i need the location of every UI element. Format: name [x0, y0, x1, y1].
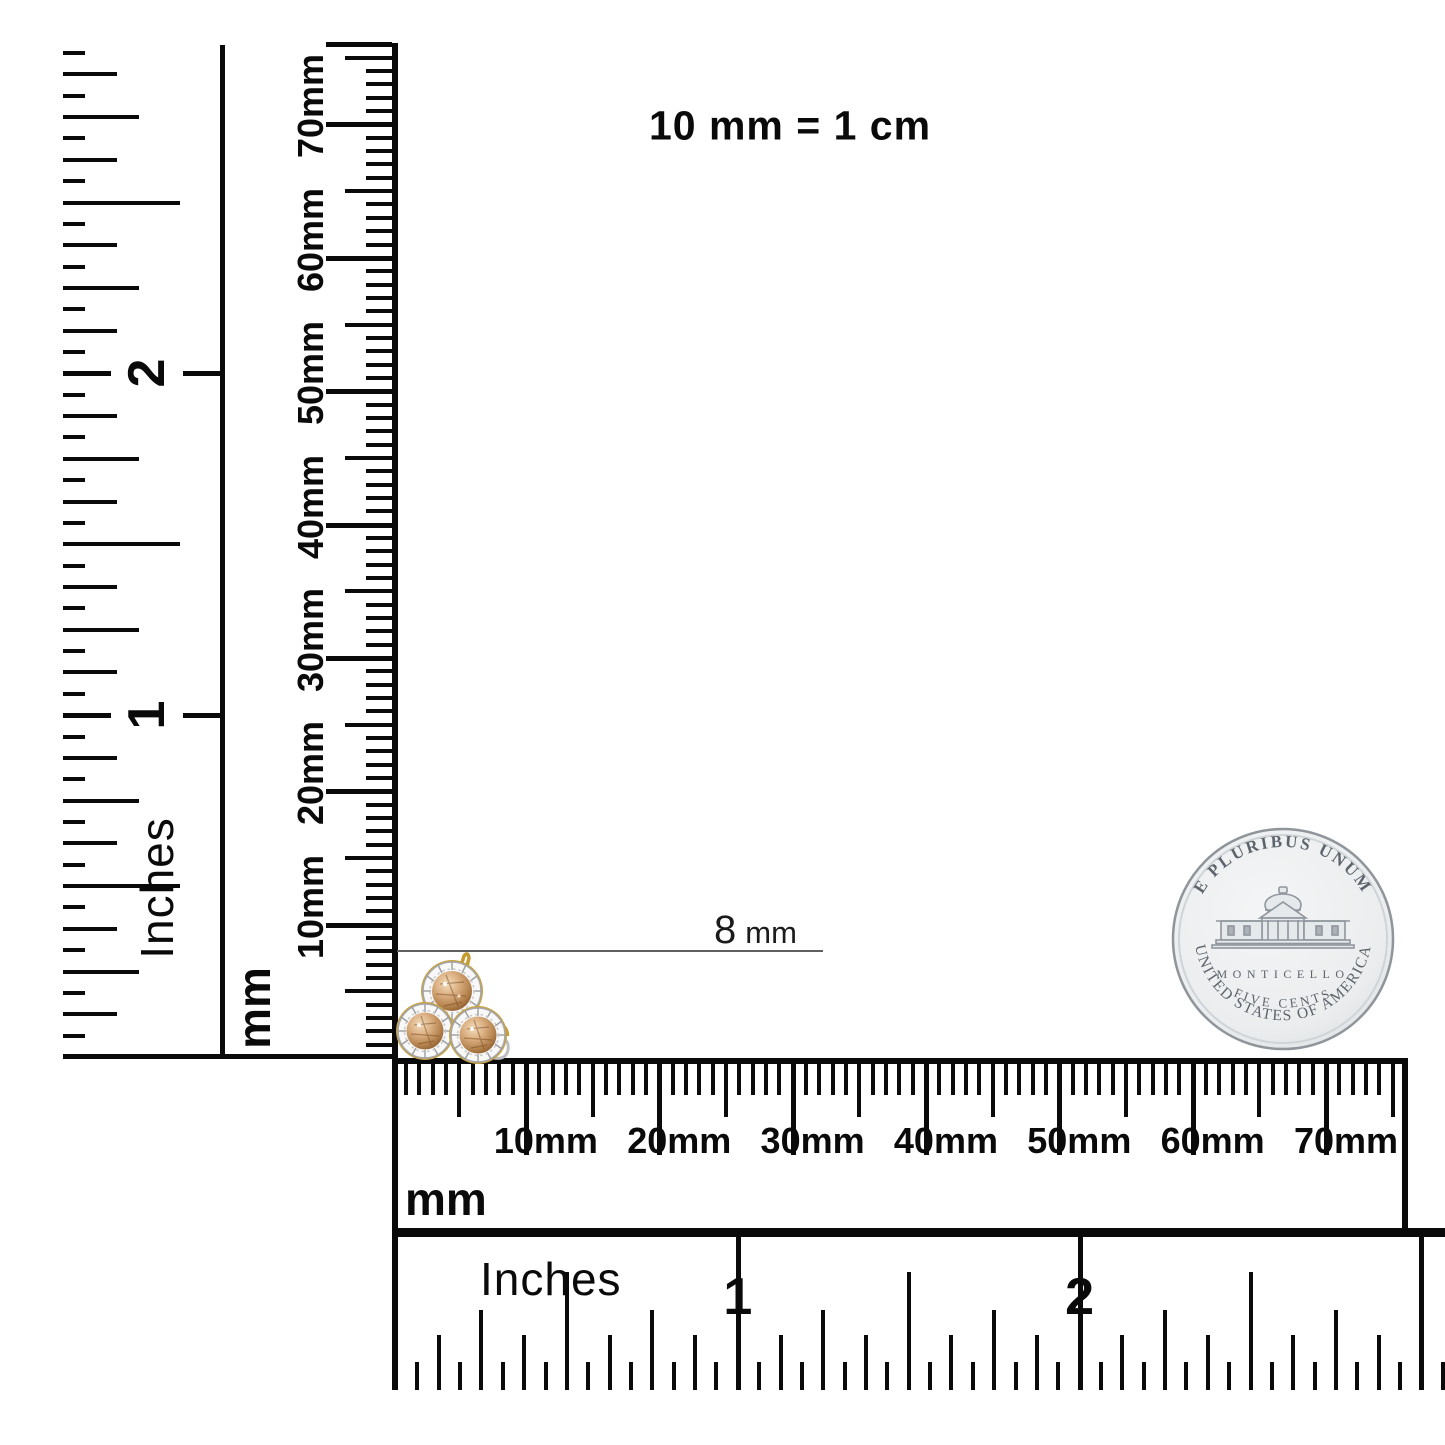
- ruler-tick: [63, 478, 85, 482]
- ruler-tick: [366, 162, 392, 166]
- ruler-tick: [1377, 1335, 1381, 1390]
- ruler-tick: [757, 1362, 761, 1390]
- ruler-tick: [63, 435, 85, 439]
- ruler-tick: [608, 1335, 612, 1390]
- scale-note: 10 mm = 1 cm: [649, 103, 931, 150]
- ruler-tick: [697, 1060, 701, 1095]
- ruler-tick: [63, 970, 139, 974]
- ruler-tick: [63, 841, 117, 845]
- ruler-tick: [366, 616, 392, 620]
- ruler-tick: [63, 329, 117, 333]
- ruler-tick: [843, 1362, 847, 1390]
- mm-tick-label: 20mm: [290, 721, 332, 825]
- ruler-tick: [458, 1362, 462, 1390]
- ruler-tick: [671, 1060, 675, 1095]
- ruler-tick: [1227, 1362, 1231, 1390]
- ruler-tick: [63, 628, 139, 632]
- ruler-tick: [366, 896, 392, 900]
- ruler-tick: [366, 709, 392, 713]
- ruler-tick: [63, 307, 85, 311]
- ruler-tick: [1398, 1362, 1402, 1390]
- ruler-tick: [1249, 1272, 1253, 1390]
- ruler-tick: [1244, 1060, 1248, 1095]
- ruler-tick: [1217, 1060, 1221, 1095]
- mm-tick-label: 50mm: [290, 321, 332, 425]
- ruler-tick: [844, 1060, 848, 1095]
- dimension-value: 8: [714, 908, 736, 952]
- ruler-tick: [544, 1362, 548, 1390]
- ruler-tick: [366, 603, 392, 607]
- ruler-tick: [63, 905, 85, 909]
- ruler-tick: [617, 1060, 621, 1095]
- ruler-tick: [1204, 1060, 1208, 1095]
- mm-tick-label: 40mm: [894, 1120, 998, 1162]
- ruler-tick: [591, 1060, 595, 1117]
- ruler-tick: [1017, 1060, 1021, 1095]
- dimension-unit: mm: [745, 915, 797, 950]
- mm-tick-label: 70mm: [1294, 1120, 1398, 1162]
- ruler-tick: [63, 136, 85, 140]
- ruler-tick: [326, 256, 392, 261]
- ruler-tick: [693, 1335, 697, 1390]
- ruler-tick: [831, 1060, 835, 1095]
- ruler-tick: [764, 1060, 768, 1095]
- ruler-tick: [586, 1362, 590, 1390]
- ruler-tick: [1364, 1060, 1368, 1095]
- ruler-tick: [345, 189, 392, 193]
- ruler-tick: [63, 735, 85, 739]
- ruler-tick: [1355, 1362, 1359, 1390]
- ruler-tick: [366, 669, 392, 673]
- ruler-tick: [992, 1310, 996, 1390]
- ruler-tick: [366, 763, 392, 767]
- horizontal-mm-ruler-right-edge: [1402, 1058, 1408, 1233]
- ruler-tick: [366, 643, 392, 647]
- ruler-tick: [1291, 1335, 1295, 1390]
- ruler-tick: [1441, 1362, 1445, 1390]
- ruler-tick: [366, 843, 392, 847]
- ruler-tick: [1142, 1362, 1146, 1390]
- ruler-tick: [1177, 1060, 1181, 1095]
- mm-tick-label: 40mm: [290, 455, 332, 559]
- ruler-tick: [631, 1060, 635, 1095]
- ruler-tick: [415, 1362, 419, 1390]
- ruler-tick: [366, 336, 392, 340]
- ruler-tick: [63, 457, 139, 461]
- ruler-tick: [345, 589, 392, 593]
- ruler-tick: [751, 1060, 755, 1095]
- ruler-tick: [457, 1060, 461, 1117]
- ruler-tick: [63, 94, 85, 98]
- mm-tick-label: 10mm: [494, 1120, 598, 1162]
- ruler-tick: [63, 201, 180, 205]
- ruler-tick: [366, 243, 392, 247]
- ruler-tick: [1334, 1310, 1338, 1390]
- ruler-tick: [366, 229, 392, 233]
- ruler-tick: [63, 670, 117, 674]
- ruler-tick: [366, 443, 392, 447]
- ruler-tick: [63, 692, 85, 696]
- ruler-tick: [366, 216, 392, 220]
- ruler-tick: [1031, 1060, 1035, 1095]
- ruler-tick: [326, 389, 392, 394]
- ruler-tick: [63, 222, 85, 226]
- ruler-tick: [804, 1060, 808, 1095]
- coin-building-label: MONTICELLO: [1217, 967, 1350, 981]
- ruler-tick: [366, 749, 392, 753]
- earring-image: [388, 944, 540, 1068]
- ruler-tick: [1271, 1060, 1275, 1095]
- ruler-tick: [907, 1272, 911, 1390]
- ruler-tick: [1111, 1060, 1115, 1095]
- ruler-tick: [366, 936, 392, 940]
- ruler-tick: [884, 1060, 888, 1095]
- ruler-tick: [63, 393, 85, 397]
- ruler-tick: [63, 799, 139, 803]
- ruler-tick: [821, 1310, 825, 1390]
- ruler-tick: [951, 1060, 955, 1095]
- ruler-tick: [63, 500, 117, 504]
- ruler-tick: [366, 549, 392, 553]
- ruler-tick: [928, 1362, 932, 1390]
- ruler-tick: [937, 1060, 941, 1095]
- ruler-tick: [63, 927, 117, 931]
- ruler-tick: [522, 1335, 526, 1390]
- ruler-tick: [366, 696, 392, 700]
- vertical-mm-ruler-edge: [392, 43, 398, 1390]
- ruler-tick: [604, 1060, 608, 1095]
- mm-tick-label: 20mm: [627, 1120, 731, 1162]
- ruler-tick: [63, 756, 117, 760]
- ruler-tick: [63, 991, 85, 995]
- ruler-tick: [501, 1362, 505, 1390]
- inch-tick-label: 2: [1065, 1267, 1094, 1327]
- ruler-tick: [1071, 1060, 1075, 1095]
- ruler-tick: [366, 829, 392, 833]
- earring-stone-right: [449, 1006, 507, 1064]
- ruler-tick: [1099, 1362, 1103, 1390]
- ruler-tick: [577, 1060, 581, 1095]
- ruler-tick: [1151, 1060, 1155, 1095]
- ruler-tick: [977, 1060, 981, 1095]
- ruler-tick: [366, 496, 392, 500]
- ruler-tick: [366, 536, 392, 540]
- horizontal-inch-unit-label: Inches: [480, 1252, 622, 1306]
- ruler-tick: [63, 585, 117, 589]
- inch-tick-label: 2: [111, 359, 183, 388]
- ruler-tick: [366, 376, 392, 380]
- ruler-tick: [366, 176, 392, 180]
- ruler-tick: [63, 350, 85, 354]
- ruler-tick: [366, 349, 392, 353]
- ruler-tick: [366, 363, 392, 367]
- ruler-tick: [345, 856, 392, 860]
- ruler-tick: [779, 1335, 783, 1390]
- ruler-tick: [63, 179, 85, 183]
- horizontal-mm-unit-label: mm: [405, 1172, 487, 1226]
- ruler-tick: [366, 149, 392, 153]
- ruler-tick: [63, 884, 180, 888]
- ruler-tick: [63, 243, 117, 247]
- ruler-tick: [1004, 1060, 1008, 1095]
- ruler-tick: [63, 777, 85, 781]
- ruler-tick: [650, 1310, 654, 1390]
- ruler-tick: [63, 72, 117, 76]
- ruler-tick: [672, 1362, 676, 1390]
- mm-tick-label: 60mm: [290, 188, 332, 292]
- ruler-tick: [63, 564, 85, 568]
- ruler-tick: [63, 51, 85, 55]
- ruler-tick: [63, 649, 85, 653]
- ruler-tick: [1035, 1335, 1039, 1390]
- ruler-tick: [911, 1060, 915, 1095]
- ruler-tick: [366, 403, 392, 407]
- ruler-tick: [366, 776, 392, 780]
- ruler-tick: [366, 483, 392, 487]
- ruler-tick: [1206, 1335, 1210, 1390]
- ruler-tick: [63, 1012, 117, 1016]
- ruler-tick: [991, 1060, 995, 1117]
- ruler-tick: [629, 1362, 633, 1390]
- ruler-tick: [366, 469, 392, 473]
- product-size-chart: 10 mm = 1 cm Inches mm 12 10mm20mm30mm40…: [0, 0, 1445, 1445]
- ruler-tick: [1184, 1362, 1188, 1390]
- ruler-tick: [366, 296, 392, 300]
- ruler-tick: [366, 96, 392, 100]
- ruler-tick: [1284, 1060, 1288, 1095]
- ruler-tick: [345, 456, 392, 460]
- ruler-tick: [63, 542, 180, 546]
- ruler-tick: [1231, 1060, 1235, 1095]
- ruler-tick: [897, 1060, 901, 1095]
- ruler-tick: [479, 1310, 483, 1390]
- vertical-mm-unit-label: mm: [227, 967, 281, 1049]
- inch-tick-label: 1: [723, 1267, 752, 1327]
- ruler-tick: [345, 989, 392, 993]
- ruler-divider-edge: [392, 1228, 1445, 1237]
- ruler-tick: [366, 136, 392, 140]
- ruler-tick: [366, 883, 392, 887]
- ruler-tick: [326, 789, 392, 794]
- ruler-tick: [1164, 1060, 1168, 1095]
- ruler-tick: [644, 1060, 648, 1095]
- ruler-tick: [345, 723, 392, 727]
- ruler-tick: [1297, 1060, 1301, 1095]
- ruler-tick: [366, 109, 392, 113]
- ruler-tick: [964, 1060, 968, 1095]
- ruler-tick: [1313, 1362, 1317, 1390]
- ruler-tick: [366, 869, 392, 873]
- ruler-tick: [366, 576, 392, 580]
- ruler-tick: [1163, 1310, 1167, 1390]
- mm-tick-label: 10mm: [290, 855, 332, 959]
- ruler-tick: [800, 1362, 804, 1390]
- ruler-tick: [1257, 1060, 1261, 1117]
- ruler-tick: [63, 606, 85, 610]
- ruler-tick: [63, 863, 85, 867]
- ruler-tick: [366, 803, 392, 807]
- ruler-tick: [1377, 1060, 1381, 1095]
- mm-tick-label: 30mm: [761, 1120, 865, 1162]
- mm-tick-label: 50mm: [1027, 1120, 1131, 1162]
- earring-stone-left: [396, 1002, 454, 1060]
- ruler-tick: [1419, 1237, 1424, 1390]
- ruler-tick: [1124, 1060, 1128, 1117]
- ruler-tick: [366, 629, 392, 633]
- ruler-tick: [366, 429, 392, 433]
- ruler-tick: [724, 1060, 728, 1117]
- ruler-tick: [1097, 1060, 1101, 1095]
- ruler-tick: [565, 1272, 569, 1390]
- ruler-tick: [864, 1335, 868, 1390]
- ruler-tick: [714, 1362, 718, 1390]
- ruler-tick: [63, 820, 85, 824]
- mm-tick-label: 60mm: [1161, 1120, 1265, 1162]
- ruler-tick: [366, 736, 392, 740]
- ruler-tick: [737, 1060, 741, 1095]
- ruler-tick: [949, 1335, 953, 1390]
- ruler-tick: [437, 1335, 441, 1390]
- vertical-ruler-bottom-edge: [63, 1054, 397, 1059]
- ruler-tick: [1351, 1060, 1355, 1095]
- ruler-tick: [971, 1362, 975, 1390]
- ruler-tick: [326, 923, 392, 928]
- ruler-tick: [366, 269, 392, 273]
- ruler-tick: [326, 122, 392, 127]
- ruler-tick: [1044, 1060, 1048, 1095]
- ruler-tick: [366, 509, 392, 513]
- ruler-tick: [1084, 1060, 1088, 1095]
- ruler-tick: [366, 563, 392, 567]
- ruler-tick: [1270, 1362, 1274, 1390]
- ruler-tick: [366, 816, 392, 820]
- ruler-tick: [1120, 1335, 1124, 1390]
- ruler-tick: [366, 283, 392, 287]
- ruler-tick: [711, 1060, 715, 1095]
- ruler-tick: [777, 1060, 781, 1095]
- ruler-tick: [366, 909, 392, 913]
- ruler-tick: [1056, 1362, 1060, 1390]
- ruler-tick: [564, 1060, 568, 1095]
- ruler-tick: [551, 1060, 555, 1095]
- ruler-tick: [345, 323, 392, 327]
- ruler-tick: [366, 202, 392, 206]
- dimension-label: 8mm: [714, 908, 797, 953]
- ruler-tick: [63, 115, 139, 119]
- ruler-tick: [684, 1060, 688, 1095]
- ruler-tick: [1014, 1362, 1018, 1390]
- ruler-tick: [63, 1034, 85, 1038]
- ruler-tick: [817, 1060, 821, 1095]
- mm-tick-label: 70mm: [290, 54, 332, 158]
- ruler-tick: [366, 82, 392, 86]
- vertical-inch-ruler-edge: [220, 45, 225, 1058]
- ruler-tick: [885, 1362, 889, 1390]
- ruler-tick: [63, 286, 139, 290]
- ruler-tick: [1311, 1060, 1315, 1095]
- ruler-tick: [345, 56, 392, 60]
- ruler-tick: [326, 656, 392, 661]
- ruler-tick: [857, 1060, 861, 1117]
- ruler-tick: [63, 948, 85, 952]
- ruler-tick: [1391, 1060, 1395, 1117]
- coin-image: E PLURIBUS UNUM MONTICELLO FIVE CENTS UN…: [1170, 826, 1396, 1052]
- ruler-tick: [366, 683, 392, 687]
- ruler-tick: [63, 414, 117, 418]
- ruler-tick: [63, 521, 85, 525]
- ruler-tick: [366, 416, 392, 420]
- ruler-tick: [366, 309, 392, 313]
- ruler-tick: [326, 42, 392, 47]
- ruler-tick: [63, 265, 85, 269]
- ruler-tick: [1137, 1060, 1141, 1095]
- ruler-tick: [63, 158, 117, 162]
- ruler-tick: [871, 1060, 875, 1095]
- inch-tick-label: 1: [111, 701, 183, 730]
- ruler-tick: [326, 523, 392, 528]
- ruler-tick: [1337, 1060, 1341, 1095]
- ruler-tick: [366, 69, 392, 73]
- mm-tick-label: 30mm: [290, 588, 332, 692]
